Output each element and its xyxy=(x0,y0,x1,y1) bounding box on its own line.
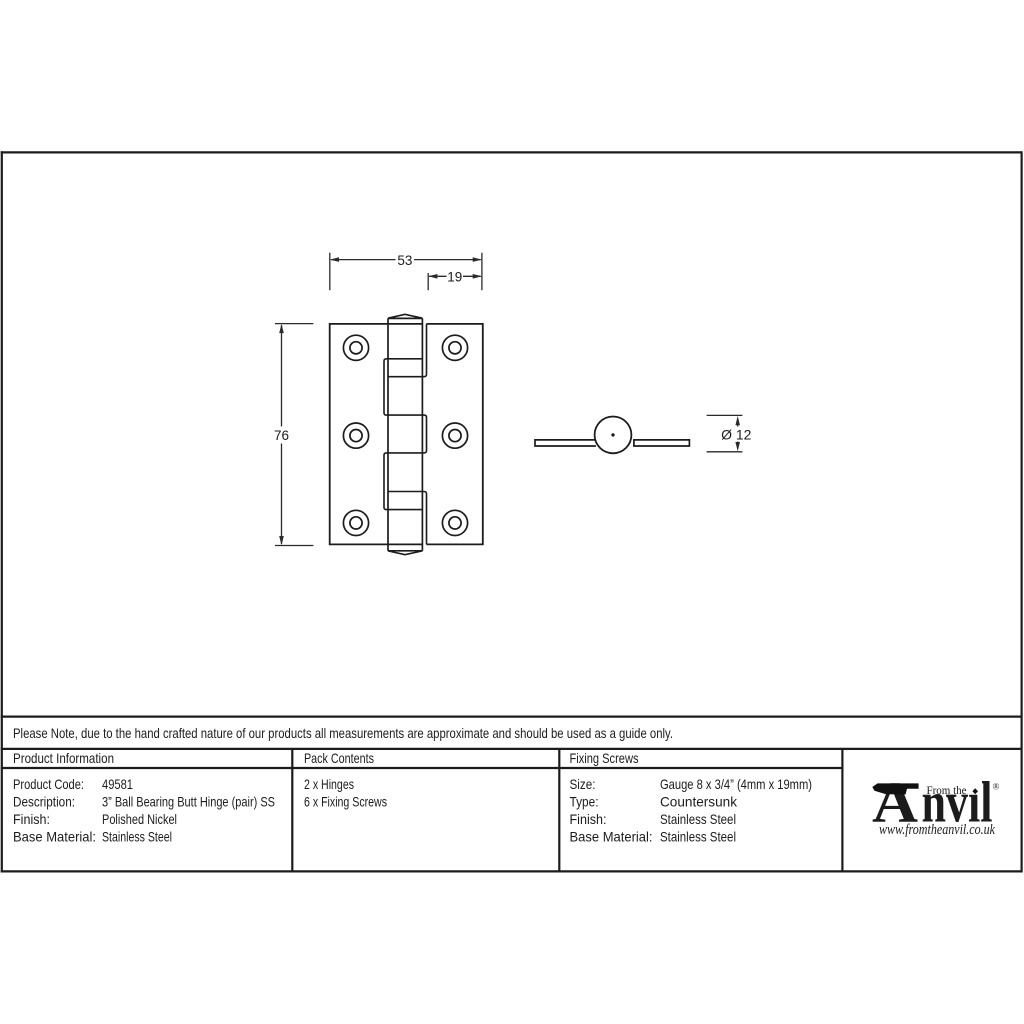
svg-text:49581: 49581 xyxy=(102,776,133,792)
svg-text:6 x Fixing Screws: 6 x Fixing Screws xyxy=(304,793,387,809)
svg-text:Finish:: Finish: xyxy=(13,811,50,827)
svg-text:Size:: Size: xyxy=(570,776,596,792)
svg-text:Countersunk: Countersunk xyxy=(660,793,738,809)
svg-text:Description:: Description: xyxy=(13,793,75,809)
svg-text:Gauge 8 x 3/4” (4mm x 19mm): Gauge 8 x 3/4” (4mm x 19mm) xyxy=(660,776,812,792)
svg-text:From the: From the xyxy=(927,783,967,797)
svg-text:www.fromtheanvil.co.uk: www.fromtheanvil.co.uk xyxy=(879,822,995,838)
svg-text:Stainless Steel: Stainless Steel xyxy=(102,828,172,844)
svg-text:Base Material:: Base Material: xyxy=(570,828,653,844)
svg-text:Product Information: Product Information xyxy=(13,750,114,766)
svg-text:Stainless Steel: Stainless Steel xyxy=(660,811,736,827)
svg-text:Type:: Type: xyxy=(570,793,599,809)
svg-text:Stainless Steel: Stainless Steel xyxy=(660,828,736,844)
svg-text:Pack Contents: Pack Contents xyxy=(304,750,374,766)
svg-text:2 x Hinges: 2 x Hinges xyxy=(304,776,354,792)
svg-text:®: ® xyxy=(993,782,1000,792)
svg-text:Please Note, due to the hand c: Please Note, due to the hand crafted nat… xyxy=(13,725,673,741)
svg-text:3” Ball Bearing Butt Hinge (pa: 3” Ball Bearing Butt Hinge (pair) SS xyxy=(102,793,275,809)
svg-text:Ø 12: Ø 12 xyxy=(721,426,752,442)
svg-text:Base Material:: Base Material: xyxy=(13,828,96,844)
svg-text:Product Code:: Product Code: xyxy=(13,776,84,792)
svg-text:76: 76 xyxy=(274,428,289,443)
svg-text:53: 53 xyxy=(397,253,412,268)
svg-text:19: 19 xyxy=(447,270,462,285)
svg-text:Finish:: Finish: xyxy=(570,811,607,827)
svg-text:Polished Nickel: Polished Nickel xyxy=(102,811,177,827)
svg-text:Fixing Screws: Fixing Screws xyxy=(570,750,639,766)
